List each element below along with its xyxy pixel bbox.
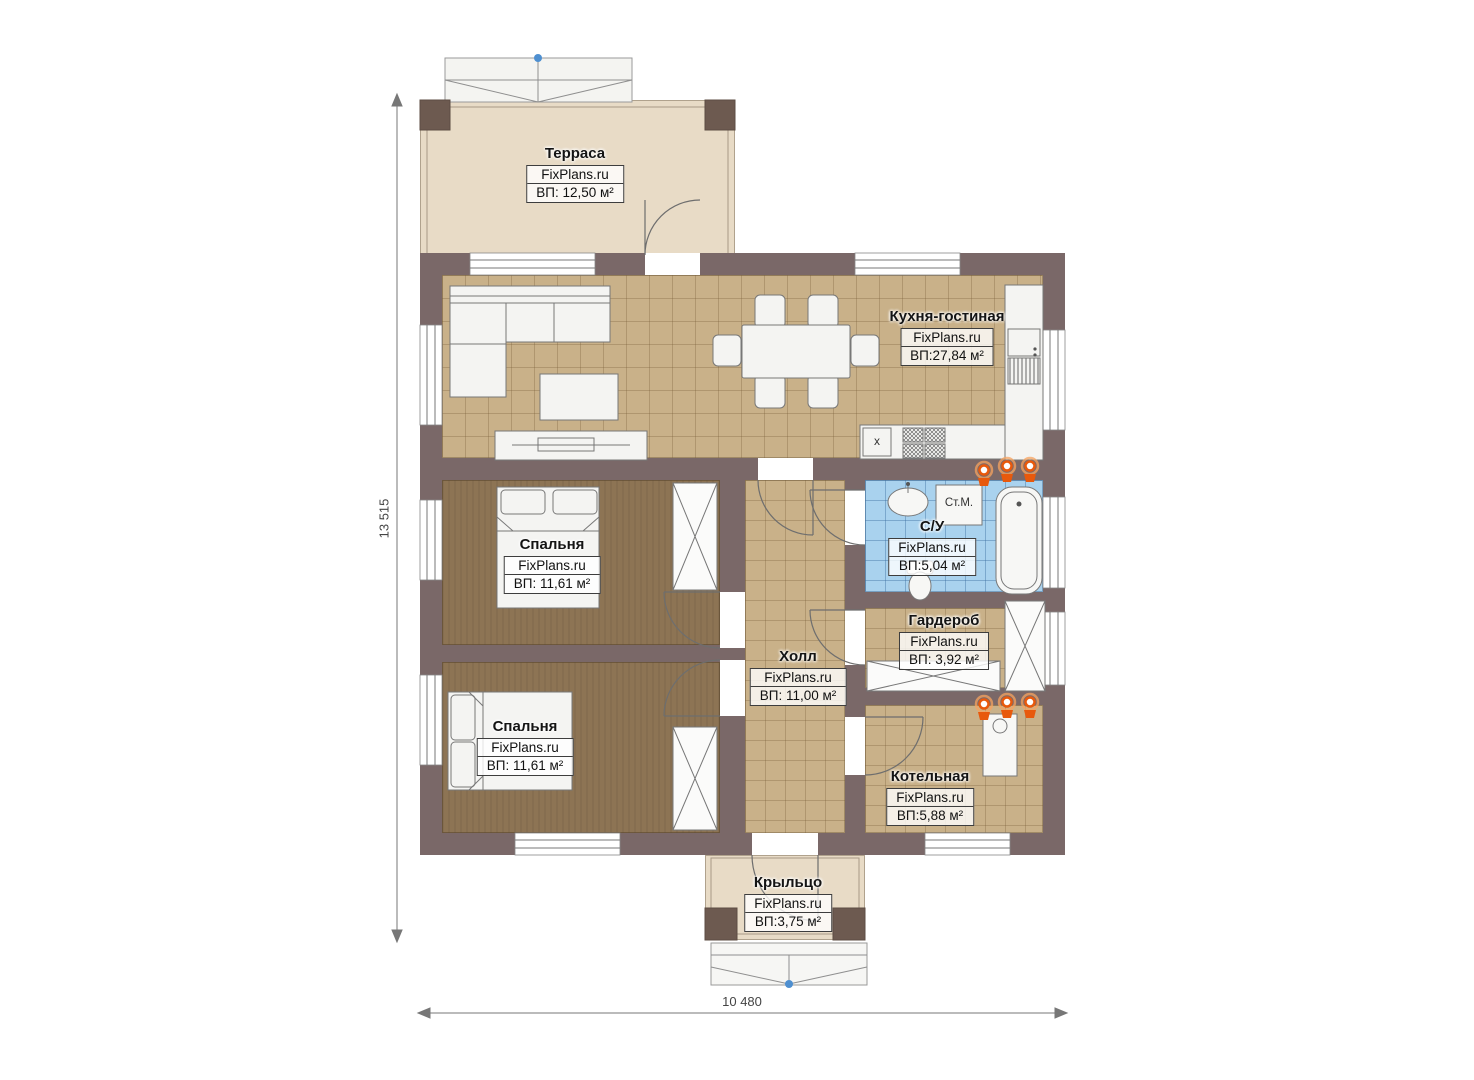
- room-name: С/У: [888, 518, 976, 535]
- room-brand: FixPlans.ru: [505, 557, 600, 575]
- room-area: ВП: 3,92 м²: [900, 651, 988, 669]
- floor-plan: Терраса FixPlans.ru ВП: 12,50 м² Кухня-г…: [0, 0, 1474, 1080]
- room-label-hall: Холл FixPlans.ru ВП: 11,00 м²: [750, 648, 847, 706]
- toilet-bowl: [909, 572, 931, 600]
- chair: [713, 335, 741, 366]
- terrace-border: [427, 107, 859, 934]
- room-brand: FixPlans.ru: [751, 669, 846, 687]
- room-info-box: FixPlans.ru ВП:27,84 м²: [900, 328, 994, 366]
- room-label-porch: Крыльцо FixPlans.ru ВП:3,75 м²: [744, 874, 832, 932]
- dining-set: [713, 295, 879, 408]
- room-area: ВП:5,04 м²: [889, 557, 975, 575]
- room-info-box: FixPlans.ru ВП:5,04 м²: [888, 538, 976, 576]
- room-label-wardrobe: Гардероб FixPlans.ru ВП: 3,92 м²: [899, 612, 989, 670]
- room-info-box: FixPlans.ru ВП:3,75 м²: [744, 894, 832, 932]
- room-name: Холл: [750, 648, 847, 665]
- dimension-width-label: 10 480: [718, 994, 766, 1009]
- room-info-box: FixPlans.ru ВП: 11,00 м²: [750, 668, 847, 706]
- coffee-table: [540, 374, 618, 420]
- terrace-roof-outline: [445, 54, 632, 102]
- pillow: [501, 490, 545, 514]
- roof-marker-dot: [534, 54, 542, 62]
- room-brand: FixPlans.ru: [901, 329, 993, 347]
- room-label-bathroom: С/У FixPlans.ru ВП:5,04 м²: [888, 518, 976, 576]
- room-area: ВП: 12,50 м²: [527, 184, 623, 202]
- pillars: [420, 100, 865, 940]
- room-label-bedroom-1: Спальня FixPlans.ru ВП: 11,61 м²: [504, 536, 601, 594]
- dining-table: [742, 325, 850, 378]
- room-brand: FixPlans.ru: [527, 166, 623, 184]
- room-area: ВП:3,75 м²: [745, 913, 831, 931]
- chair: [808, 295, 838, 328]
- porch-steps: [711, 943, 867, 988]
- room-label-bedroom-2: Спальня FixPlans.ru ВП: 11,61 м²: [477, 718, 574, 776]
- room-brand: FixPlans.ru: [745, 895, 831, 913]
- room-info-box: FixPlans.ru ВП: 11,61 м²: [504, 556, 601, 594]
- chair: [755, 295, 785, 328]
- chair: [851, 335, 879, 366]
- room-area: ВП:5,88 м²: [887, 807, 973, 825]
- room-brand: FixPlans.ru: [900, 633, 988, 651]
- room-name: Терраса: [526, 145, 624, 162]
- tv-stand: [495, 431, 647, 460]
- room-name: Спальня: [504, 536, 601, 553]
- room-area: ВП:27,84 м²: [901, 347, 993, 365]
- room-label-kitchen-living: Кухня-гостиная FixPlans.ru ВП:27,84 м²: [890, 308, 1005, 366]
- kitchen-counter-right: [1005, 285, 1043, 460]
- room-name: Кухня-гостиная: [890, 308, 1005, 325]
- radiator-icon: [1022, 694, 1038, 718]
- room-label-boiler: Котельная FixPlans.ru ВП:5,88 м²: [886, 768, 974, 826]
- room-brand: FixPlans.ru: [889, 539, 975, 557]
- room-area: ВП: 11,61 м²: [478, 757, 573, 775]
- kitchen-counter-bottom: [860, 425, 1005, 459]
- steps-marker-dot: [785, 980, 793, 988]
- room-info-box: FixPlans.ru ВП: 3,92 м²: [899, 632, 989, 670]
- room-name: Котельная: [886, 768, 974, 785]
- room-name: Гардероб: [899, 612, 989, 629]
- dimension-height-label: 13 515: [376, 495, 391, 543]
- room-info-box: FixPlans.ru ВП: 12,50 м²: [526, 165, 624, 203]
- room-info-box: FixPlans.ru ВП:5,88 м²: [886, 788, 974, 826]
- room-brand: FixPlans.ru: [478, 739, 573, 757]
- room-name: Спальня: [477, 718, 574, 735]
- chair: [755, 375, 785, 408]
- room-label-terrace: Терраса FixPlans.ru ВП: 12,50 м²: [526, 145, 624, 203]
- room-area: ВП: 11,00 м²: [751, 687, 846, 705]
- room-brand: FixPlans.ru: [887, 789, 973, 807]
- boiler-unit: [983, 714, 1017, 776]
- room-name: Крыльцо: [744, 874, 832, 891]
- room-info-box: FixPlans.ru ВП: 11,61 м²: [477, 738, 574, 776]
- washing-machine-label: Ст.М.: [945, 497, 973, 509]
- kitchen-sink-mark: x: [874, 434, 880, 448]
- radiator-icon: [976, 462, 992, 486]
- pillow: [553, 490, 597, 514]
- chair: [808, 375, 838, 408]
- room-area: ВП: 11,61 м²: [505, 575, 600, 593]
- floor-plan-drawing: [0, 0, 1474, 1080]
- pillow: [451, 742, 475, 787]
- pillow: [451, 695, 475, 740]
